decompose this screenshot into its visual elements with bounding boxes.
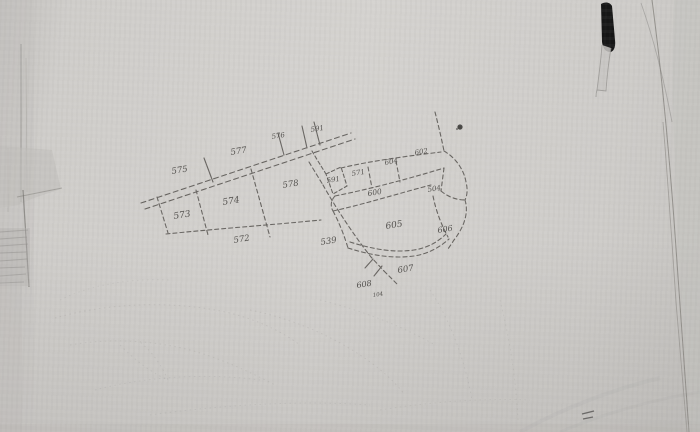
parcel-label-607: 607 xyxy=(397,263,415,276)
bottom-right-smudge xyxy=(0,378,700,432)
parcel-label-591: 591 xyxy=(310,124,324,134)
cross-ticks-608 xyxy=(365,259,382,276)
road-tick-marks xyxy=(204,122,320,182)
parcel-label-573: 573 xyxy=(173,209,192,222)
parcel-label-539: 539 xyxy=(320,235,338,248)
parcel-label-574: 574 xyxy=(222,195,241,208)
parcel-591-small xyxy=(312,151,347,194)
parcel-labels: 5755775765915785745735725395915716046026… xyxy=(171,124,454,299)
parcel-label-572: 572 xyxy=(233,234,251,246)
parcel-label-575: 575 xyxy=(171,165,189,177)
parcel-label-608: 608 xyxy=(356,279,373,290)
pen-ink-mark xyxy=(596,2,615,97)
cadastral-map-scan: 5755775765915785745735725395915716046026… xyxy=(0,0,700,432)
parcel-label-578: 578 xyxy=(282,178,300,191)
parcel-label-591: 591 xyxy=(326,175,340,185)
parcel-label-504: 504 xyxy=(427,184,441,194)
bleed-through-noise xyxy=(55,280,530,420)
scanned-paper-page: 5755775765915785745735725395915716046026… xyxy=(0,0,700,432)
parcel-boundary-lines xyxy=(141,112,467,284)
parcel-label-602: 602 xyxy=(414,147,429,157)
parcel-label-604: 604 xyxy=(384,157,398,167)
parcel-label-577: 577 xyxy=(230,145,248,158)
parcel-label-606: 606 xyxy=(437,224,454,235)
ink-dot xyxy=(456,124,463,130)
parcel-label-571: 571 xyxy=(351,168,365,178)
parcel-label-605: 605 xyxy=(385,219,404,232)
left-edge-shadow xyxy=(0,0,62,432)
right-parcel-block xyxy=(331,112,467,257)
boundary-539 xyxy=(323,185,397,284)
parcel-label-104: 104 xyxy=(372,291,384,299)
parcel-label-576: 576 xyxy=(271,131,286,141)
parcel-label-600: 600 xyxy=(367,187,383,198)
right-edge-fold xyxy=(641,0,700,432)
